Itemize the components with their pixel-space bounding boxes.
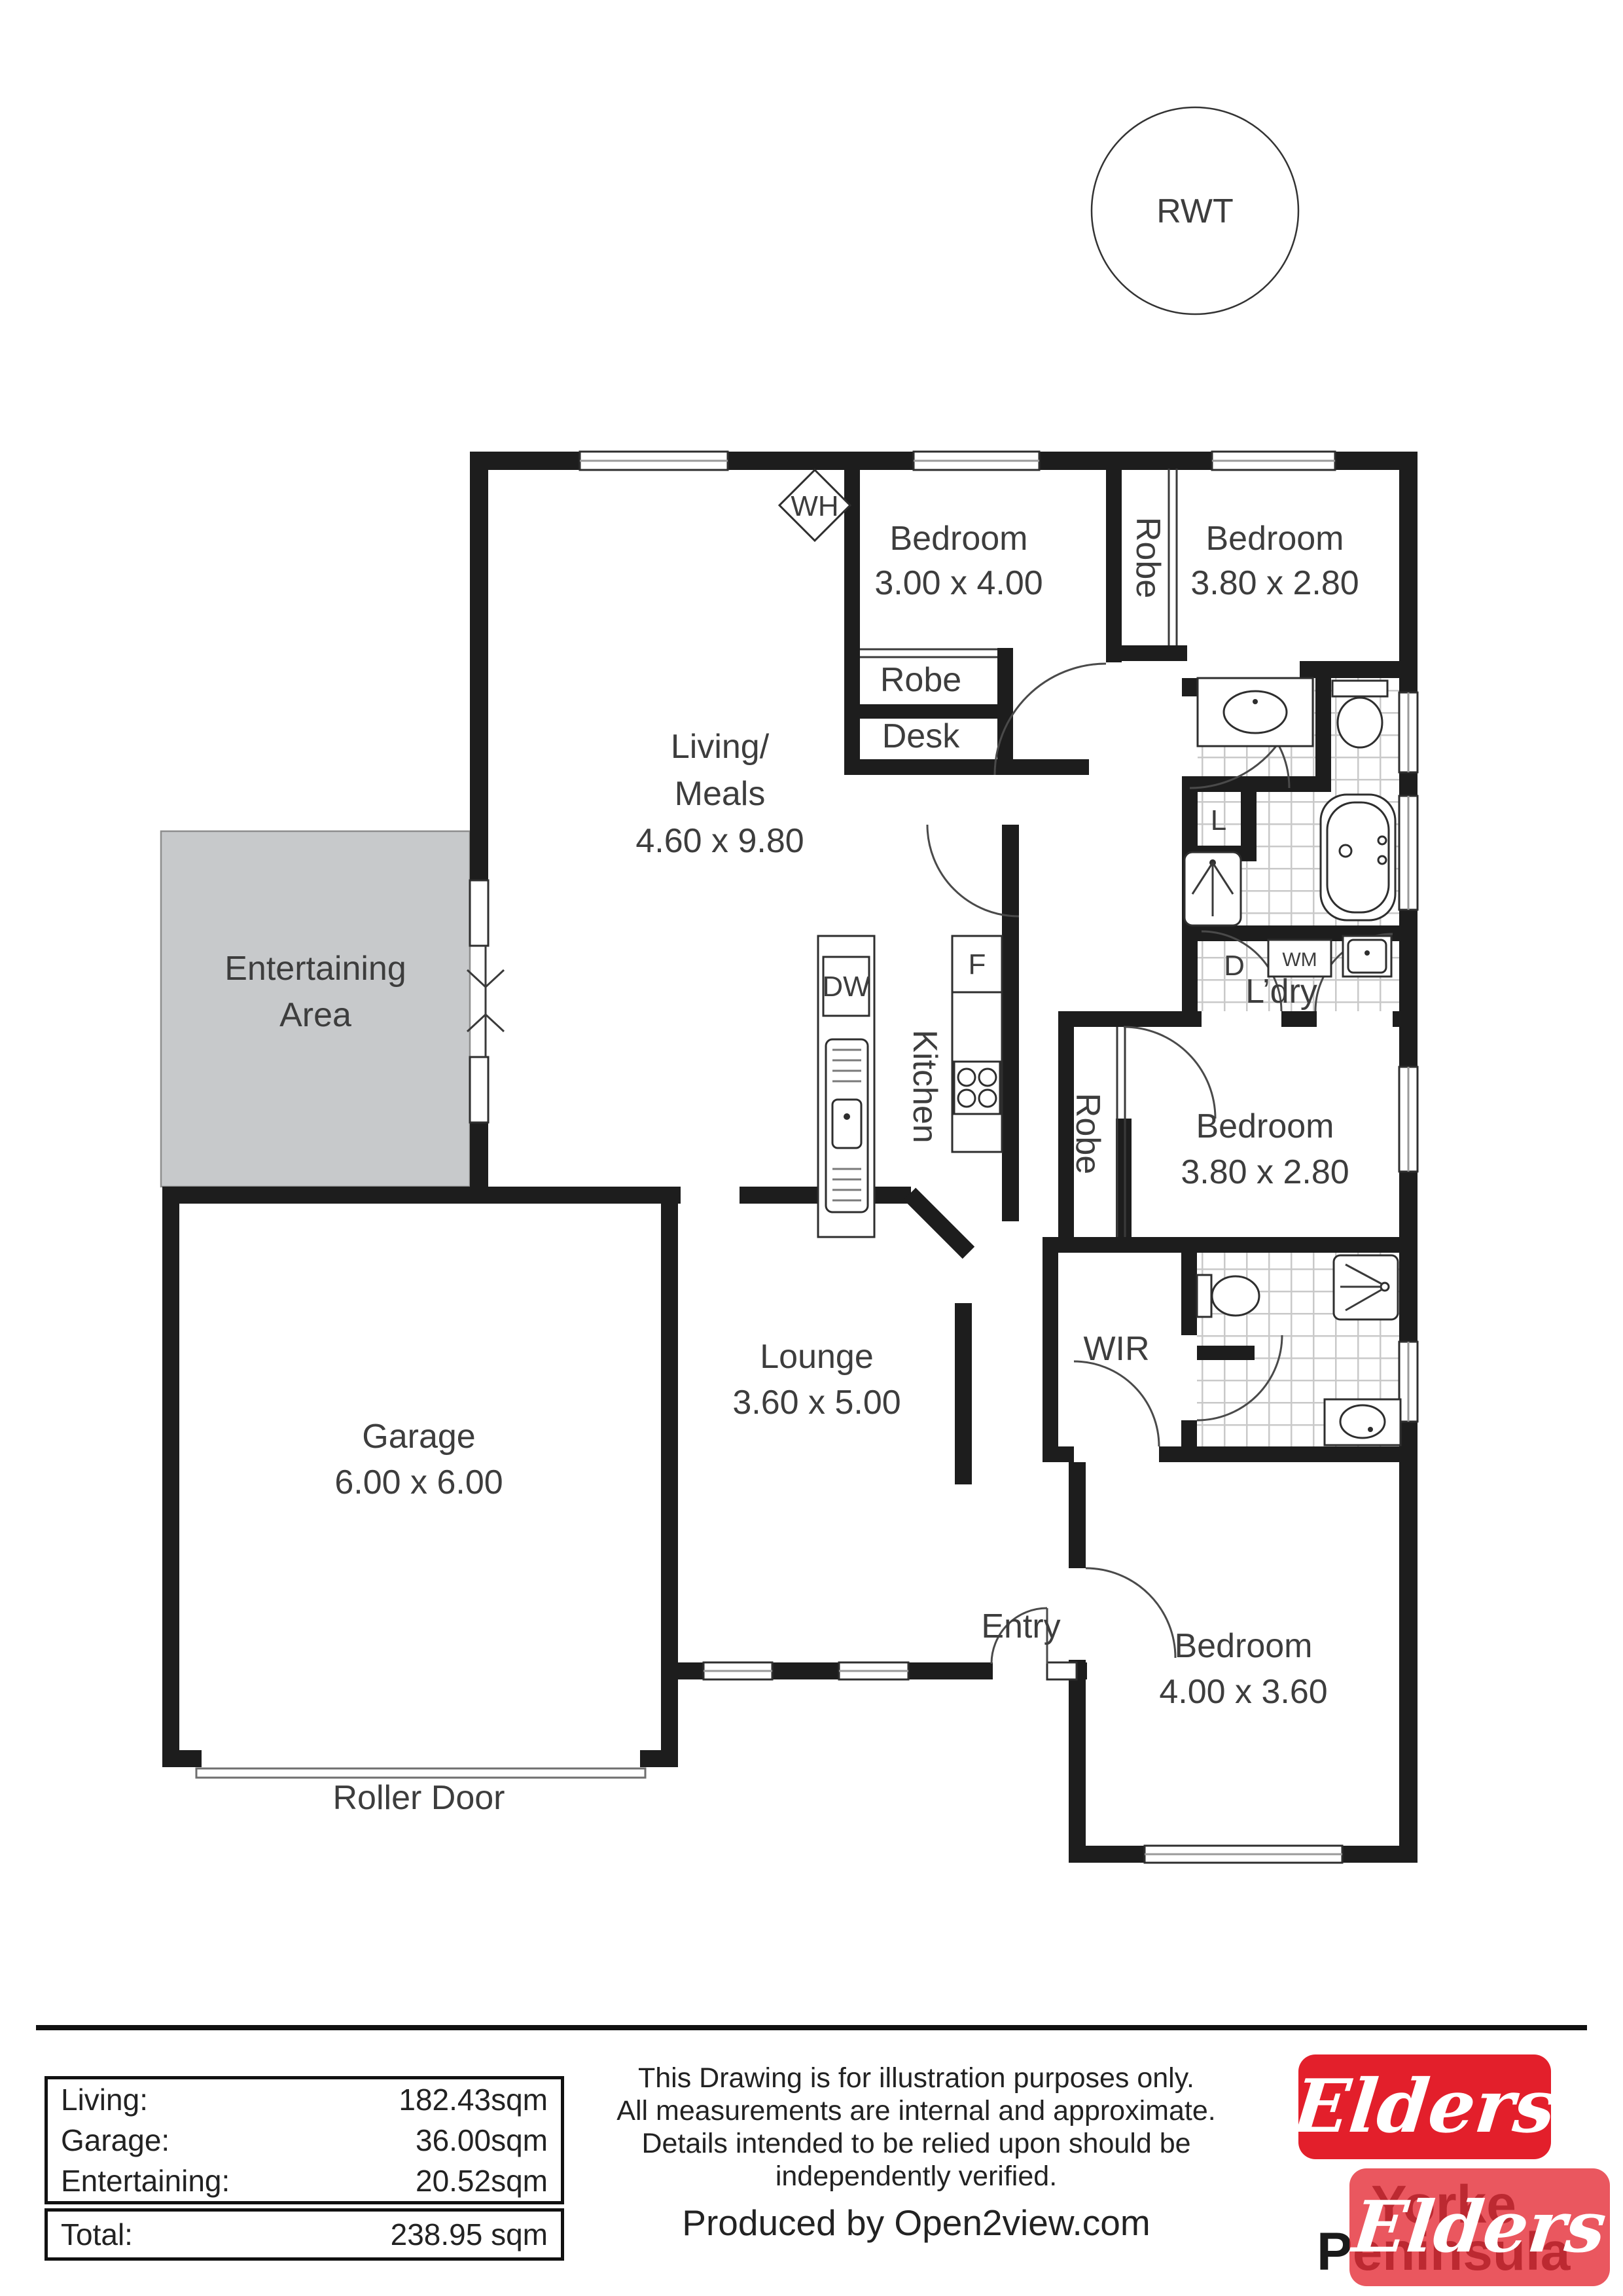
elders-wordmark: Elders bbox=[1350, 2192, 1610, 2263]
living-label-2: Meals bbox=[675, 775, 766, 813]
rwt-label: RWT bbox=[1156, 192, 1233, 230]
bedroom4-label: Bedroom bbox=[1175, 1627, 1313, 1665]
disclaimer-line: This Drawing is for illustration purpose… bbox=[550, 2062, 1283, 2094]
robe3-label: Robe bbox=[1069, 1093, 1107, 1174]
robe1-label: Robe bbox=[1129, 517, 1167, 598]
bedroom1-dim: 3.80 x 2.80 bbox=[1190, 564, 1359, 602]
bedroom3-label: Bedroom bbox=[1196, 1107, 1334, 1145]
toilet2-bowl bbox=[1212, 1276, 1259, 1316]
dryer-label: D bbox=[1224, 950, 1245, 982]
entry-label: Entry bbox=[981, 1607, 1060, 1645]
bedroom4-dim: 4.00 x 3.60 bbox=[1159, 1673, 1327, 1711]
kitchen-bench: F bbox=[952, 936, 1002, 1152]
washing-machine-label: WM bbox=[1282, 949, 1317, 971]
area-table: Living: 182.43sqm Garage: 36.00sqm Enter… bbox=[45, 2076, 564, 2204]
area-value: 36.00sqm bbox=[416, 2123, 548, 2158]
angled-wall bbox=[910, 1194, 969, 1253]
floorplan-drawing: RWT Entertaining Area bbox=[0, 0, 1623, 2029]
living-dim: 4.60 x 9.80 bbox=[635, 822, 804, 860]
water-heater: WH bbox=[779, 470, 850, 541]
roller-door-label: Roller Door bbox=[333, 1779, 505, 1817]
area-label: Entertaining: bbox=[61, 2163, 230, 2198]
ldry-label: L’dry bbox=[1245, 973, 1317, 1011]
toilet2-tank bbox=[1197, 1275, 1211, 1317]
area-table-total: Total: 238.95 sqm bbox=[45, 2208, 564, 2261]
living-label: Living/ bbox=[671, 728, 770, 766]
lounge-dim: 3.60 x 5.00 bbox=[732, 1384, 901, 1422]
area-value: 20.52sqm bbox=[416, 2163, 548, 2198]
garage-dim: 6.00 x 6.00 bbox=[334, 1463, 503, 1501]
wh-label: WH bbox=[791, 490, 838, 522]
elders-logo-secondary: Elders bbox=[1349, 2168, 1610, 2286]
disclaimer-line: Details intended to be relied upon shoul… bbox=[550, 2127, 1283, 2160]
elders-logo: Elders bbox=[1298, 2054, 1551, 2159]
bedroom1-label: Bedroom bbox=[1206, 520, 1344, 558]
wir-label: WIR bbox=[1083, 1330, 1149, 1368]
produced-by: Produced by Open2view.com bbox=[550, 2202, 1283, 2244]
disclaimer-line: All measurements are internal and approx… bbox=[550, 2094, 1283, 2127]
total-value: 238.95 sqm bbox=[391, 2217, 548, 2252]
area-value: 182.43sqm bbox=[399, 2082, 548, 2117]
table-row: Living: 182.43sqm bbox=[48, 2082, 561, 2117]
table-row-total: Total: 238.95 sqm bbox=[48, 2217, 561, 2252]
disclaimer: This Drawing is for illustration purpose… bbox=[550, 2062, 1283, 2244]
total-label: Total: bbox=[61, 2217, 133, 2252]
entertaining-area: Entertaining Area bbox=[161, 831, 470, 1187]
lounge-label: Lounge bbox=[760, 1338, 874, 1376]
toilet-tank bbox=[1332, 681, 1387, 696]
bedroom2-dim: 3.00 x 4.00 bbox=[874, 564, 1043, 602]
area-label: Garage: bbox=[61, 2123, 169, 2158]
table-row: Garage: 36.00sqm bbox=[48, 2123, 561, 2158]
disclaimer-line: independently verified. bbox=[550, 2160, 1283, 2193]
roller-door bbox=[196, 1768, 645, 1778]
entertaining-label-2: Area bbox=[279, 996, 351, 1034]
sliding-door bbox=[467, 880, 504, 1122]
kitchen-island: DW bbox=[818, 936, 874, 1237]
floorplan-page: RWT Entertaining Area bbox=[0, 0, 1623, 2296]
dishwasher-label: DW bbox=[822, 971, 870, 1003]
area-label: Living: bbox=[61, 2082, 148, 2117]
kitchen-label: Kitchen bbox=[906, 1030, 944, 1143]
linen-label: L bbox=[1211, 804, 1226, 836]
tiled-floors bbox=[1197, 678, 1399, 1446]
rainwater-tank: RWT bbox=[1092, 107, 1298, 314]
fridge-label: F bbox=[969, 948, 986, 980]
bedroom2-label: Bedroom bbox=[890, 520, 1028, 558]
footer-divider bbox=[36, 2025, 1587, 2030]
table-row: Entertaining: 20.52sqm bbox=[48, 2163, 561, 2198]
elders-wordmark: Elders bbox=[1290, 2070, 1559, 2144]
toilet-bowl bbox=[1338, 698, 1382, 747]
bedroom3-dim: 3.80 x 2.80 bbox=[1181, 1153, 1349, 1191]
desk-label: Desk bbox=[882, 717, 960, 755]
entertaining-label: Entertaining bbox=[224, 950, 406, 988]
robe2-label: Robe bbox=[880, 661, 961, 699]
garage-label: Garage bbox=[362, 1418, 475, 1456]
